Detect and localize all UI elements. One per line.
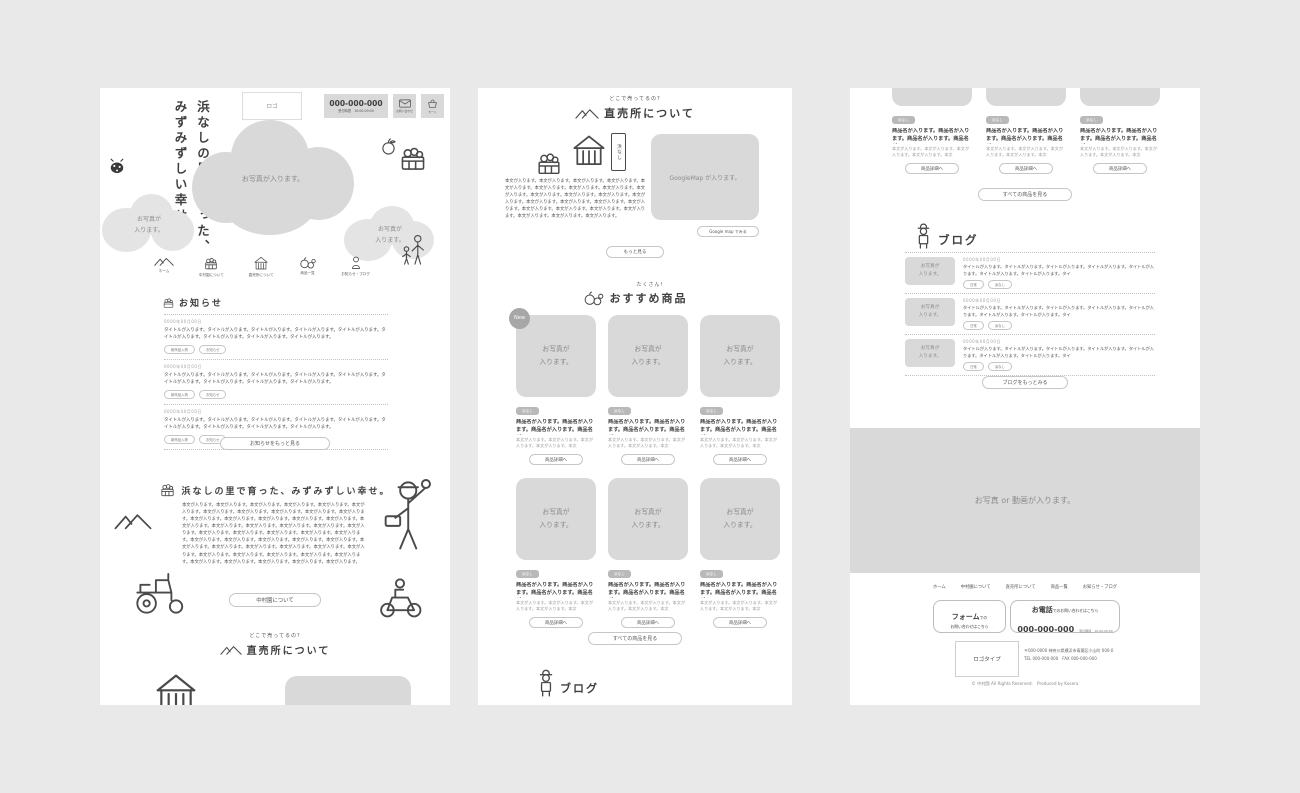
product-detail-button[interactable]: 商品詳細へ (1093, 163, 1147, 174)
about-button[interactable]: 中村園について (229, 593, 321, 607)
products-section-title: おすすめ商品 (478, 290, 792, 306)
product-description: 本文が入ります。本文が入ります。本文が入ります。本文が入ります。本文 (516, 600, 596, 612)
section-title-text: 浜なしの里で育った、みずみずしい幸せ。 (181, 484, 390, 497)
tel-button-line2: 000-000-000 受付時間 10:00-00:00 (1017, 617, 1112, 636)
about-body: 本文が入ります。本文が入ります。本文が入ります。本文が入ります。本文が入ります。… (182, 502, 368, 574)
tel-hours: 受付時間 10:00-00:00 (1079, 629, 1112, 633)
blog-tag[interactable]: 日常 (963, 321, 984, 330)
product-card: お写真が 入ります。 浜なし 商品名が入ります。商品名が入ります。商品名が入りま… (700, 315, 780, 465)
blog-date: 0000年00月00日 (963, 339, 1155, 345)
product-name: 商品名が入ります。商品名が入ります。商品名が入ります。商品名が入 (700, 582, 780, 598)
fruit-box-icon (203, 256, 219, 271)
fruits-icon (583, 290, 605, 306)
blog-tag[interactable]: 日常 (963, 362, 984, 371)
footer-nav: ホーム 中村園について 直売所について 商品一覧 お知らせ・ブログ (850, 584, 1200, 590)
photo-placeholder-text: お写真が 入ります。 (631, 506, 664, 532)
news-tag[interactable]: 新商品入荷 (164, 435, 195, 444)
subtitle-text: たくさん! (636, 281, 663, 288)
products-subtitle: たくさん! (478, 281, 792, 288)
shop-subtitle: どこで売ってるの? (478, 95, 792, 102)
product-tag: 浜なし (700, 407, 723, 415)
section-title-text: 直売所について (247, 642, 331, 657)
news-tag[interactable]: 新商品入荷 (164, 390, 195, 399)
product-photo-placeholder (892, 88, 972, 106)
tractor-illustration (128, 566, 190, 616)
footer-telfax: TEL 000-000-000 FAX 000-000-000 (1024, 655, 1113, 663)
news-date: 0000年00月00日 (164, 409, 388, 415)
product-detail-button[interactable]: 商品詳細へ (999, 163, 1053, 174)
shop-section-title: 直売所について (478, 105, 792, 121)
product-tag: 浜なし (700, 570, 723, 578)
blog-tag[interactable]: 日常 (963, 280, 984, 289)
product-card: お写真が 入ります。 浜なし 商品名が入ります。商品名が入ります。商品名が入りま… (608, 315, 688, 465)
product-name: 商品名が入ります。商品名が入ります。商品名が入ります。商品名が入 (1080, 128, 1160, 144)
product-tag: 浜なし (608, 570, 631, 578)
blog-thumbnail: お写真が 入ります。 (905, 339, 955, 367)
product-detail-button[interactable]: 商品詳細へ (713, 454, 767, 465)
nav-item-products[interactable]: 商品一覧 (299, 256, 317, 278)
farm-stand-illustration (152, 672, 200, 705)
product-tag: 浜なし (516, 570, 539, 578)
footer-address: 〒000-0000 神奈川県横浜市青葉区小山町 000-0 (1024, 647, 1113, 655)
blog-tag[interactable]: 浜なし (988, 321, 1012, 330)
product-photo-placeholder: お写真が 入ります。 (700, 478, 780, 560)
product-name: 商品名が入ります。商品名が入ります。商品名が入ります。商品名が入 (516, 582, 596, 598)
product-photo-placeholder: お写真が 入ります。 (608, 478, 688, 560)
product-description: 本文が入ります。本文が入ります。本文が入ります。本文が入ります。本文 (700, 437, 780, 449)
photo-placeholder-text: お写真が 入ります。 (631, 343, 664, 369)
photo-placeholder-text: お写真が 入ります。 (919, 263, 942, 280)
nav-label: お知らせ・ブログ (341, 272, 370, 277)
product-name: 商品名が入ります。商品名が入ります。商品名が入ります。商品名が入 (700, 419, 780, 435)
photo-placeholder-text: お写真が 入ります。 (723, 506, 756, 532)
media-placeholder: お写真 or 動画が入ります。 (850, 428, 1200, 573)
product-photo-placeholder: お写真が 入ります。 (700, 315, 780, 397)
cart-icon (427, 98, 438, 109)
nav-label: ホーム (159, 269, 170, 274)
product-description: 本文が入ります。本文が入ります。本文が入ります。本文が入ります。本文 (516, 437, 596, 449)
product-detail-button[interactable]: 商品詳細へ (529, 617, 583, 628)
photo-placeholder-text: お写真が 入ります。 (919, 345, 942, 362)
product-description: 本文が入ります。本文が入ります。本文が入ります。本文が入ります。本文 (608, 600, 688, 612)
photo-placeholder-box (285, 676, 411, 705)
section-title-text: 直売所について (604, 105, 695, 121)
contact-tel-button[interactable]: お電話でのお問い合わせはこちら 000-000-000 受付時間 10:00-0… (1010, 600, 1120, 633)
product-description: 本文が入ります。本文が入ります。本文が入ります。本文が入ります。本文 (1080, 146, 1160, 158)
blog-tag[interactable]: 浜なし (988, 280, 1012, 289)
hero-photo-main: お写真が入ります。 (192, 118, 354, 240)
nav-label: 中村園について (199, 273, 224, 278)
phone-hours: 受付時間 10:00-00:00 (338, 108, 373, 113)
footer-nav-home[interactable]: ホーム (933, 584, 946, 590)
news-more-button[interactable]: お知らせをもっと見る (220, 437, 330, 450)
product-description: 本文が入ります。本文が入ります。本文が入ります。本文が入ります。本文 (986, 146, 1066, 158)
blog-thumbnail: お写真が 入ります。 (905, 257, 955, 285)
hero-photo-left: お写真が 入ります。 (102, 194, 196, 256)
product-card: 浜なし 商品名が入ります。商品名が入ります。商品名が入ります。商品名が入 本文が… (986, 88, 1066, 174)
photo-placeholder-text: お写真が 入ります。 (723, 343, 756, 369)
news-title-text: タイトルが入ります。タイトルが入ります。タイトルが入ります。タイトルが入ります。… (164, 372, 388, 387)
tel-button-line1: お電話でのお問い合わせはこちら (1032, 597, 1099, 616)
tel-big-text: お電話 (1032, 606, 1053, 614)
subtitle-text: どこで売ってるの? (609, 95, 660, 102)
family-illustration (396, 234, 432, 266)
blog-item[interactable]: お写真が 入ります。 0000年00月00日 タイトルが入ります。タイトルが入り… (905, 293, 1155, 334)
product-card: お写真が 入ります。 浜なし 商品名が入ります。商品名が入ります。商品名が入りま… (608, 478, 688, 628)
contact-button[interactable]: お問い合わせ (393, 94, 416, 118)
blog-date: 0000年00月00日 (963, 298, 1155, 304)
news-date: 0000年00月00日 (164, 319, 388, 325)
product-tag: 浜なし (986, 116, 1009, 124)
shop-banner-flag: 浜なし (611, 133, 626, 171)
product-name: 商品名が入ります。商品名が入ります。商品名が入ります。商品名が入 (892, 128, 972, 144)
form-big-text: フォーム (952, 613, 980, 621)
product-photo-placeholder: お写真が 入ります。New (516, 315, 596, 397)
mountains-icon (220, 644, 242, 656)
product-tag: 浜なし (892, 116, 915, 124)
product-description: 本文が入ります。本文が入ります。本文が入ります。本文が入ります。本文 (608, 437, 688, 449)
tel-small-text: でのお問い合わせはこちら (1053, 608, 1099, 613)
farmer-icon (914, 222, 933, 249)
product-photo-placeholder: お写真が 入ります。 (516, 478, 596, 560)
google-map-button[interactable]: Google map でみる (697, 226, 759, 237)
header-phone[interactable]: 000-000-000 受付時間 10:00-00:00 (324, 94, 388, 118)
ladybug-icon (108, 158, 126, 174)
form-button-line1: フォームでの (952, 604, 987, 623)
product-detail-button[interactable]: 商品詳細へ (529, 454, 583, 465)
logo[interactable]: ロゴ (242, 92, 302, 120)
copyright-text: © 中村園 All Rights Reserved. Produced by K… (972, 681, 1079, 687)
banner-text: 浜なし (616, 144, 622, 161)
photo-placeholder-text: お写真が 入ります。 (539, 506, 572, 532)
tel-number: 000-000-000 (1017, 625, 1074, 634)
contact-form-button[interactable]: フォームでの お問い合わせはこちら (933, 600, 1006, 633)
envelope-icon (399, 99, 411, 108)
product-tag: 浜なし (1080, 116, 1103, 124)
footer-nav-blog[interactable]: お知らせ・ブログ (1083, 584, 1117, 590)
product-card: 浜なし 商品名が入ります。商品名が入ります。商品名が入ります。商品名が入 本文が… (1080, 88, 1160, 174)
blog-item-body: 0000年00月00日 タイトルが入ります。タイトルが入ります。タイトルが入りま… (963, 257, 1155, 289)
apple-icon (381, 138, 396, 155)
product-name: 商品名が入ります。商品名が入ります。商品名が入ります。商品名が入 (608, 419, 688, 435)
blog-title-text: タイトルが入ります。タイトルが入ります。タイトルが入ります。タイトルが入ります。… (963, 264, 1155, 278)
photo-placeholder-text: お写真が 入ります。 (919, 304, 942, 321)
product-card: お写真が 入ります。 浜なし 商品名が入ります。商品名が入ります。商品名が入りま… (700, 478, 780, 628)
map-placeholder-text: GoogleMap が入ります。 (669, 173, 740, 182)
product-detail-button[interactable]: 商品詳細へ (713, 617, 767, 628)
blog-section-title: ブログ (938, 232, 979, 248)
blog-item-body: 0000年00月00日 タイトルが入ります。タイトルが入ります。タイトルが入りま… (963, 298, 1155, 330)
blog-date: 0000年00月00日 (963, 257, 1155, 263)
farmer-icon (536, 668, 556, 697)
blog-item-body: 0000年00月00日 タイトルが入ります。タイトルが入ります。タイトルが入りま… (963, 339, 1155, 371)
news-tag[interactable]: お知らせ (199, 390, 227, 399)
hut-icon (253, 256, 269, 271)
product-photo-placeholder (986, 88, 1066, 106)
product-card: お写真が 入ります。 浜なし 商品名が入ります。商品名が入ります。商品名が入りま… (516, 478, 596, 628)
news-item[interactable]: 0000年00月00日 タイトルが入ります。タイトルが入ります。タイトルが入りま… (164, 359, 388, 404)
mountains-icon (154, 256, 174, 267)
product-card: 浜なし 商品名が入ります。商品名が入ります。商品名が入ります。商品名が入 本文が… (892, 88, 972, 174)
cart-label: カート (428, 110, 436, 114)
fruit-box-icon (162, 297, 175, 309)
global-nav: ホーム 中村園について 直売所について 商品一覧 お知らせ・ブログ (154, 256, 370, 278)
product-detail-button[interactable]: 商品詳細へ (621, 617, 675, 628)
fruits-icon (299, 256, 317, 269)
blog-list: お写真が 入ります。 0000年00月00日 タイトルが入ります。タイトルが入り… (905, 252, 1155, 376)
nav-label: 商品一覧 (300, 271, 314, 276)
mockup-page-3: 浜なし 商品名が入ります。商品名が入ります。商品名が入ります。商品名が入 本文が… (850, 88, 1200, 705)
product-detail-button[interactable]: 商品詳細へ (905, 163, 959, 174)
product-detail-button[interactable]: 商品詳細へ (621, 454, 675, 465)
blog-more-button[interactable]: ブログをもっとみる (982, 376, 1068, 389)
mountains-icon (575, 107, 599, 120)
section-title-text: お知らせ (179, 296, 223, 309)
product-name: 商品名が入ります。商品名が入ります。商品名が入ります。商品名が入 (986, 128, 1066, 144)
nav-item-blog[interactable]: お知らせ・ブログ (341, 256, 370, 278)
product-tag: 浜なし (608, 407, 631, 415)
product-name: 商品名が入ります。商品名が入ります。商品名が入ります。商品名が入 (516, 419, 596, 435)
news-item[interactable]: 0000年00月00日 タイトルが入ります。タイトルが入ります。タイトルが入りま… (164, 314, 388, 359)
footer-nav-shop[interactable]: 直売所について (1006, 584, 1036, 590)
farm-stand-illustration (570, 132, 608, 170)
media-placeholder-text: お写真 or 動画が入ります。 (975, 495, 1075, 506)
news-section-title: お知らせ (162, 296, 223, 309)
product-description: 本文が入ります。本文が入ります。本文が入ります。本文が入ります。本文 (892, 146, 972, 158)
shop-body: 本文が入ります。本文が入ります。本文が入ります。本文が入ります。本文が入ります。… (505, 178, 647, 224)
news-title-text: タイトルが入ります。タイトルが入ります。タイトルが入ります。タイトルが入ります。… (164, 417, 388, 432)
photo-placeholder-text: お写真が 入ります。 (539, 343, 572, 369)
shop-more-button[interactable]: もっと見る (606, 246, 664, 258)
phone-number: 000-000-000 (329, 99, 382, 108)
mockup-page-1: ロゴ 000-000-000 受付時間 10:00-00:00 お問い合わせ カ… (100, 88, 450, 705)
copyright: © 中村園 All Rights Reserved. Produced by K… (850, 681, 1200, 687)
product-name: 商品名が入ります。商品名が入ります。商品名が入ります。商品名が入 (608, 582, 688, 598)
blog-item[interactable]: お写真が 入ります。 0000年00月00日 タイトルが入ります。タイトルが入り… (905, 252, 1155, 293)
product-photo-placeholder: お写真が 入ります。 (608, 315, 688, 397)
blog-thumbnail: お写真が 入ります。 (905, 298, 955, 326)
subtitle-text: どこで売ってるの? (249, 632, 300, 639)
section-title-text: おすすめ商品 (610, 290, 688, 306)
shop-section-title: 直売所について (100, 642, 450, 657)
footer-logo: ロゴタイプ (955, 641, 1019, 677)
nav-label: 直売所について (249, 273, 274, 278)
blog-title-text: タイトルが入ります。タイトルが入ります。タイトルが入ります。タイトルが入ります。… (963, 305, 1155, 319)
blog-title-text: タイトルが入ります。タイトルが入ります。タイトルが入ります。タイトルが入ります。… (963, 346, 1155, 360)
news-tag[interactable]: お知らせ (199, 345, 227, 354)
fruit-box-illustration (534, 150, 564, 177)
fruit-box-icon (159, 482, 176, 498)
news-title-text: タイトルが入ります。タイトルが入ります。タイトルが入ります。タイトルが入ります。… (164, 327, 388, 342)
fruit-picker-illustration (376, 474, 434, 552)
product-tag: 浜なし (516, 407, 539, 415)
shop-subtitle: どこで売ってるの? (100, 632, 450, 639)
footer-address-block: 〒000-0000 神奈川県横浜市青葉区小山町 000-0 TEL 000-00… (1024, 647, 1113, 662)
form-button-line2: お問い合わせはこちら (951, 624, 989, 630)
news-tag[interactable]: 新商品入荷 (164, 345, 195, 354)
form-small-text: での (980, 615, 988, 620)
photo-placeholder: お写真が入ります。 (192, 118, 354, 240)
product-photo-placeholder (1080, 88, 1160, 106)
scooter-illustration (376, 574, 424, 618)
blog-tag[interactable]: 浜なし (988, 362, 1012, 371)
google-map-placeholder: GoogleMap が入ります。 (651, 134, 759, 220)
cart-button[interactable]: カート (421, 94, 444, 118)
news-list: 0000年00月00日 タイトルが入ります。タイトルが入ります。タイトルが入りま… (164, 314, 388, 450)
footer-nav-about[interactable]: 中村園について (961, 584, 991, 590)
nav-item-about[interactable]: 中村園について (199, 256, 224, 278)
contact-label: お問い合わせ (396, 109, 413, 113)
all-products-button[interactable]: すべての商品を見る (588, 632, 682, 645)
blog-item[interactable]: お写真が 入ります。 0000年00月00日 タイトルが入ります。タイトルが入り… (905, 334, 1155, 375)
blog-section-title: ブログ (560, 680, 599, 696)
news-date: 0000年00月00日 (164, 364, 388, 370)
person-icon (350, 256, 362, 270)
nav-item-shop[interactable]: 直売所について (249, 256, 274, 278)
nav-item-home[interactable]: ホーム (154, 256, 174, 278)
product-description: 本文が入ります。本文が入ります。本文が入ります。本文が入ります。本文 (700, 600, 780, 612)
fruit-box-illustration (397, 144, 429, 173)
mockup-page-2: どこで売ってるの? 直売所について 浜なし 本文が入ります。本文が入ります。本文… (478, 88, 792, 705)
footer-nav-products[interactable]: 商品一覧 (1051, 584, 1068, 590)
all-products-button[interactable]: すべての商品を見る (978, 188, 1072, 201)
mountains-illustration (114, 512, 152, 530)
product-card: お写真が 入ります。New 浜なし 商品名が入ります。商品名が入ります。商品名が… (516, 315, 596, 465)
photo-placeholder: お写真が 入ります。 (102, 194, 196, 256)
new-badge: New (509, 308, 530, 329)
